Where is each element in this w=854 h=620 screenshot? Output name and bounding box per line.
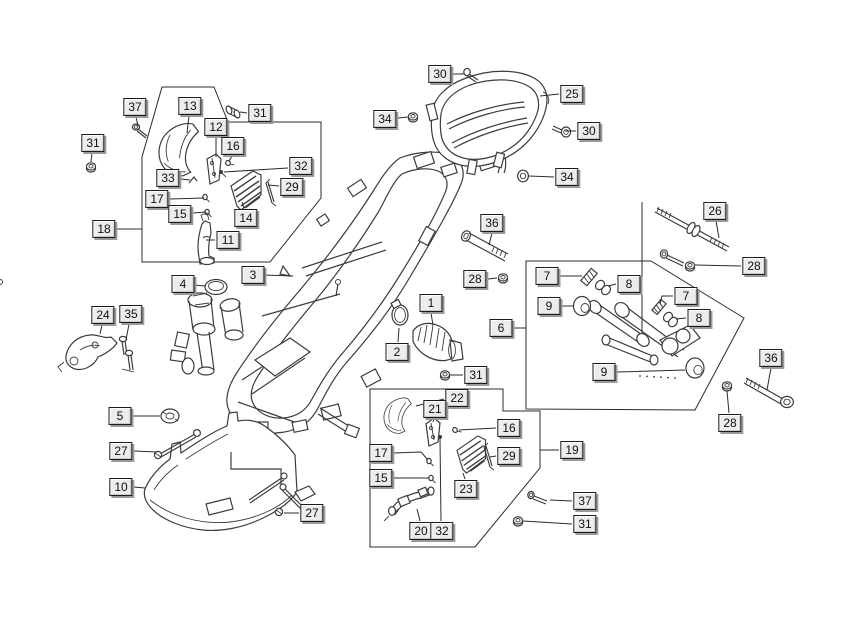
part-label-2[interactable]: 2	[386, 343, 409, 361]
part-label-11[interactable]: 11	[217, 231, 240, 249]
leader-line-31	[523, 521, 572, 524]
part-label-33[interactable]: 33	[156, 169, 179, 187]
part-label-27[interactable]: 27	[109, 442, 132, 460]
part-label-31[interactable]: 31	[573, 515, 596, 533]
part-label-34[interactable]: 34	[373, 110, 396, 128]
leader-line-32	[224, 168, 288, 172]
part-label-34[interactable]: 34	[555, 168, 578, 186]
leader-line-16	[459, 428, 496, 430]
leader-line-31	[91, 153, 92, 162]
part-label-27[interactable]: 27	[300, 504, 323, 522]
part-label-8[interactable]: 8	[618, 275, 641, 293]
leader-line-2	[398, 328, 399, 342]
part-label-36[interactable]: 36	[480, 214, 503, 232]
leader-line-36	[767, 368, 771, 390]
leader-line-34	[398, 117, 408, 118]
part-label-20[interactable]: 20	[409, 522, 432, 540]
left-fasteners	[58, 105, 241, 423]
part-label-7[interactable]: 7	[675, 287, 698, 305]
part-label-28[interactable]: 28	[718, 414, 741, 432]
leader-line-28	[488, 278, 497, 279]
part-label-37[interactable]: 37	[123, 98, 146, 116]
part-label-36[interactable]: 36	[759, 349, 782, 367]
part-label-5[interactable]: 5	[109, 407, 132, 425]
part-label-18[interactable]: 18	[92, 220, 115, 238]
part-label-12[interactable]: 12	[204, 118, 227, 136]
part-label-31[interactable]: 31	[248, 104, 271, 122]
leader-line-8	[676, 318, 686, 319]
part-label-28[interactable]: 28	[742, 257, 765, 275]
leader-line-16	[229, 156, 232, 161]
leader-line-35	[126, 324, 129, 340]
part-label-30[interactable]: 30	[577, 122, 600, 140]
part-label-23[interactable]: 23	[454, 480, 477, 498]
part-label-35[interactable]: 35	[119, 305, 142, 323]
leader-line-17	[170, 198, 204, 199]
footboard-plate-14	[231, 171, 261, 210]
leader-line-17	[394, 452, 428, 460]
part-label-17[interactable]: 17	[369, 444, 392, 462]
part-label-15[interactable]: 15	[369, 469, 392, 487]
part-label-16[interactable]: 16	[497, 419, 520, 437]
leader-line-31	[240, 112, 247, 113]
part-label-31[interactable]: 31	[464, 366, 487, 384]
leader-line-26	[716, 221, 719, 238]
part-label-10[interactable]: 10	[109, 478, 132, 496]
heat-shield-22	[382, 396, 411, 434]
part-label-21[interactable]: 21	[423, 400, 446, 418]
footboard-plate-23	[457, 436, 486, 473]
leader-line-15	[193, 212, 206, 213]
part-label-3[interactable]: 3	[242, 266, 265, 284]
leader-line-27	[134, 451, 157, 452]
part-label-4[interactable]: 4	[172, 275, 195, 293]
leader-line-28	[695, 265, 741, 266]
part-label-31[interactable]: 31	[81, 134, 104, 152]
leader-line-24	[100, 325, 102, 334]
part-label-32[interactable]: 32	[289, 157, 312, 175]
leader-line-32	[440, 439, 441, 521]
part-label-32[interactable]: 32	[430, 522, 453, 540]
part-label-13[interactable]: 13	[178, 97, 201, 115]
part-label-7[interactable]: 7	[536, 267, 559, 285]
part-label-8[interactable]: 8	[688, 309, 711, 327]
part-label-29[interactable]: 29	[497, 447, 520, 465]
leader-line-23	[463, 473, 465, 479]
part-label-24[interactable]: 24	[91, 306, 114, 324]
leader-line-34	[529, 176, 554, 177]
part-label-29[interactable]: 29	[280, 178, 303, 196]
part-label-17[interactable]: 17	[145, 190, 168, 208]
leader-line-4	[194, 285, 205, 286]
leader-line-10	[134, 487, 145, 488]
part-label-16[interactable]: 16	[221, 137, 244, 155]
leader-line-28	[727, 391, 729, 413]
part-label-28[interactable]: 28	[463, 270, 486, 288]
leader-line-37	[550, 500, 572, 501]
leader-line-36	[489, 233, 492, 245]
part-label-25[interactable]: 25	[560, 85, 583, 103]
part-label-37[interactable]: 37	[573, 492, 596, 510]
part-label-14[interactable]: 14	[234, 209, 257, 227]
part-label-9[interactable]: 9	[538, 297, 561, 315]
exploded-parts-diagram: 3731133112163233291715141811433025343034…	[0, 0, 854, 620]
leader-line-29	[490, 456, 496, 457]
leader-line-20	[417, 509, 420, 521]
leader-line-9	[617, 370, 685, 372]
leader-line-33	[181, 179, 190, 180]
part-label-15[interactable]: 15	[168, 205, 191, 223]
part-label-1[interactable]: 1	[420, 294, 443, 312]
part-label-22[interactable]: 22	[445, 389, 468, 407]
part-label-19[interactable]: 19	[560, 441, 583, 459]
part-label-30[interactable]: 30	[428, 65, 451, 83]
part-label-6[interactable]: 6	[490, 319, 513, 337]
leader-line-8	[608, 284, 616, 286]
part-label-9[interactable]: 9	[593, 363, 616, 381]
part-label-26[interactable]: 26	[703, 202, 726, 220]
